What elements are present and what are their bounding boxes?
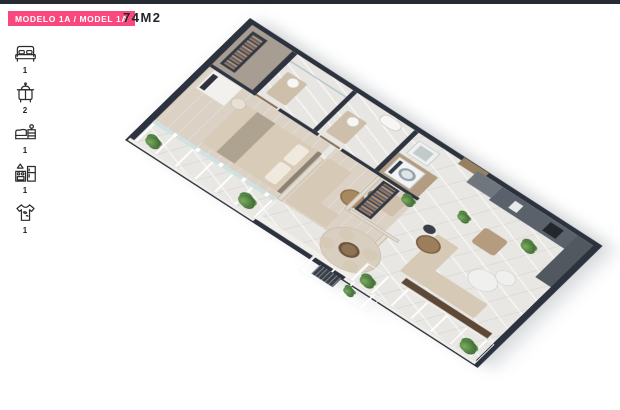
washer-drum <box>395 166 419 184</box>
sink-basin <box>413 145 434 161</box>
floor-plan <box>0 0 620 410</box>
apartment-plan <box>125 18 603 368</box>
page: MODELO 1A / MODEL 1A 74M2 1 2 <box>0 0 620 410</box>
kitchen-sink <box>508 201 523 213</box>
cooktop <box>542 222 564 239</box>
bed-throw <box>216 112 275 164</box>
